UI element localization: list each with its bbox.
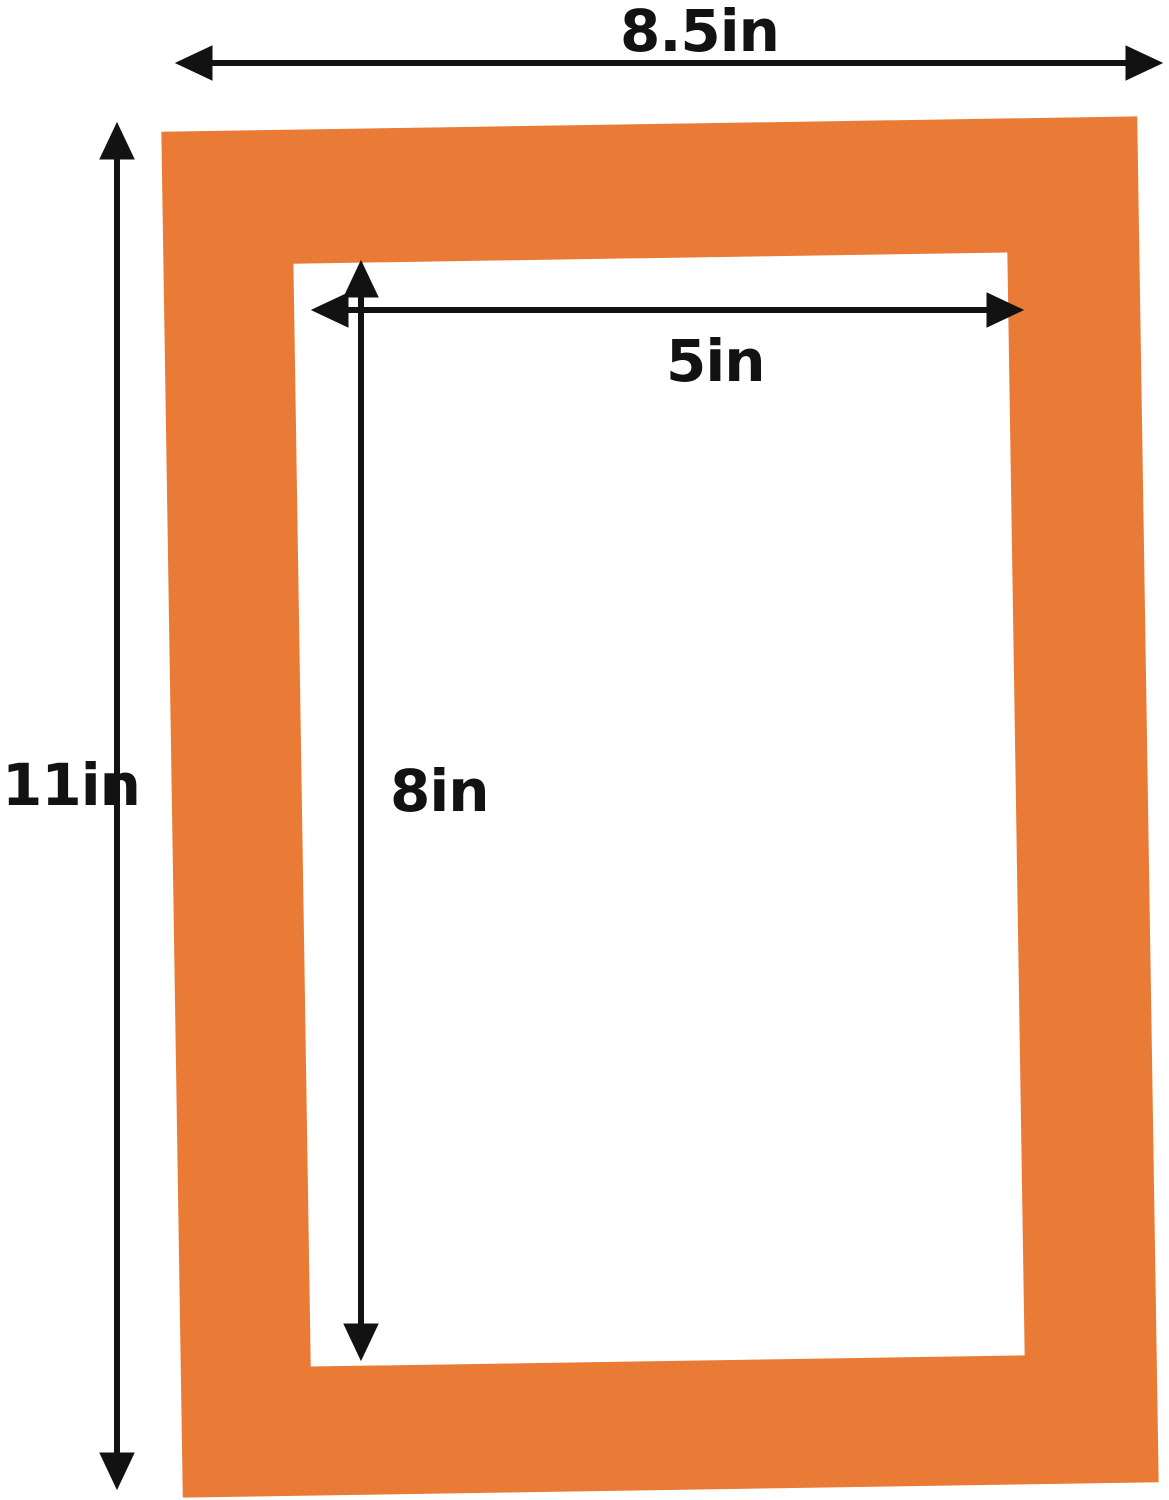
inner-width-arrow bbox=[312, 293, 1023, 327]
inner-height-arrow bbox=[344, 261, 378, 1360]
outer-height-label: 11in bbox=[2, 754, 140, 818]
outer-width-label: 8.5in bbox=[620, 0, 779, 64]
diagram-canvas: 8.5in 11in 5in 8in bbox=[0, 0, 1169, 1500]
dimension-arrows bbox=[0, 0, 1169, 1500]
inner-width-label: 5in bbox=[666, 330, 765, 394]
inner-height-label: 8in bbox=[390, 760, 489, 824]
